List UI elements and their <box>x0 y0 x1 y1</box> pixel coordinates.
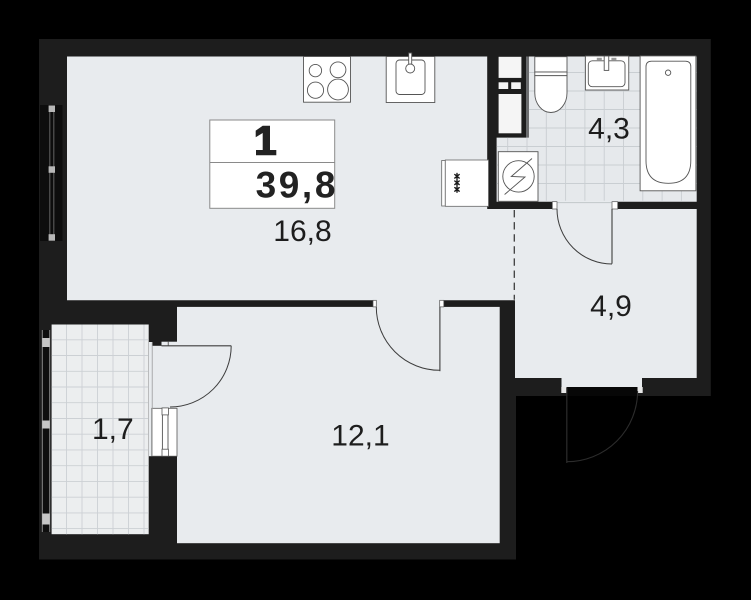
svg-text:4,3: 4,3 <box>588 113 630 146</box>
svg-text:1,7: 1,7 <box>92 413 134 446</box>
svg-text:39,8: 39,8 <box>256 165 338 206</box>
svg-text:12,1: 12,1 <box>331 420 389 453</box>
svg-text:16,8: 16,8 <box>273 215 331 248</box>
svg-text:4,9: 4,9 <box>590 290 632 323</box>
